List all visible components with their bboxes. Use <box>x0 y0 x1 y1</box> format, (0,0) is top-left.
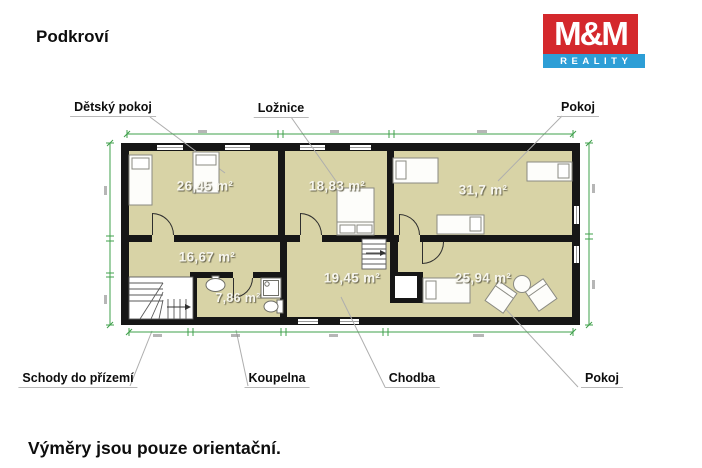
room-area-mistnost: 16,67 m² <box>179 250 235 265</box>
logo-mm-text: M&M <box>543 14 638 54</box>
window <box>340 319 359 324</box>
floor-plan-page: { "page": { "title": "Podkroví", "footer… <box>0 0 702 468</box>
window <box>350 145 371 150</box>
logo-reality-text: REALITY <box>543 54 645 68</box>
room-label-koupelna: Koupelna <box>245 371 310 388</box>
room-label-pokoj-bottom: Pokoj <box>581 371 623 388</box>
room-label-loznice: Ložnice <box>254 101 309 118</box>
wall <box>420 235 572 242</box>
chimney-core <box>395 276 417 298</box>
wall <box>280 242 287 317</box>
wall <box>253 272 280 278</box>
window <box>225 145 250 150</box>
room-area-pokoj-top: 31,7 m² <box>459 183 508 198</box>
room-label-pokoj-top: Pokoj <box>557 100 599 117</box>
page-title: Podkroví <box>36 27 109 47</box>
window <box>157 145 183 150</box>
footer-note: Výměry jsou pouze orientační. <box>28 438 281 459</box>
room-label-schody: Schody do přízemí <box>18 371 137 388</box>
window <box>300 145 325 150</box>
room-label-chodba: Chodba <box>385 371 440 388</box>
wall <box>190 272 197 317</box>
wall <box>129 235 152 242</box>
room-area-chodba: 19,45 m² <box>324 271 380 286</box>
room-area-detsky-pokoj: 26,45 m² <box>177 179 233 194</box>
room-area-loznice: 18,83 m² <box>309 179 365 194</box>
wall <box>322 235 399 242</box>
wall <box>390 242 398 272</box>
window <box>574 246 579 263</box>
wall <box>174 235 300 242</box>
room-label-detsky-pokoj: Dětský pokoj <box>70 100 156 117</box>
room-area-koupelna: 7,86 m² <box>215 291 260 305</box>
window <box>298 319 318 324</box>
window <box>574 206 579 224</box>
mm-reality-logo: M&M REALITY <box>543 14 645 68</box>
wall <box>278 151 285 235</box>
room-area-pokoj-bottom: 25,94 m² <box>455 271 511 286</box>
wall <box>387 151 394 235</box>
